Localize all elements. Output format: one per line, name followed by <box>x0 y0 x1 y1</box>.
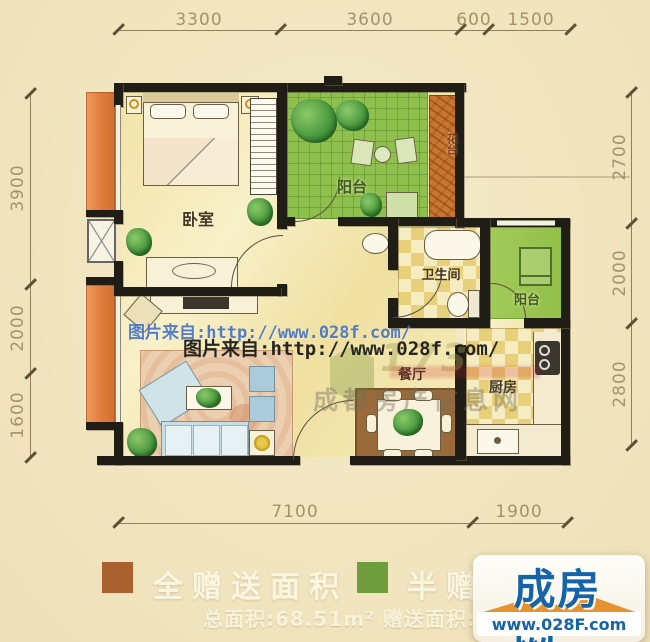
dim-left-2: 2000 <box>8 304 28 351</box>
wall <box>86 210 117 217</box>
dim-left-1: 3900 <box>8 164 28 211</box>
dim-line-left <box>30 93 31 457</box>
label-balcony-top: 阳台 <box>337 176 367 197</box>
sofa-cushion <box>221 425 248 456</box>
label-flower-bed: 花台 <box>443 133 459 155</box>
wardrobe <box>250 98 277 195</box>
legend-swatch-full-gift <box>102 562 133 593</box>
logo-site: www.028F.com <box>492 615 627 634</box>
gift-bay-living <box>86 285 115 423</box>
wall-pier <box>324 76 342 85</box>
dim-right-2: 2000 <box>610 249 630 296</box>
kitchen-sink-drain <box>494 437 501 444</box>
dim-right-1: 2700 <box>610 133 630 180</box>
label-bathroom: 卫生间 <box>421 264 460 283</box>
wall-left <box>114 83 123 107</box>
neighbor-line <box>464 176 630 178</box>
dim-line-bottom <box>118 523 567 524</box>
dim-top-4: 1500 <box>507 10 554 30</box>
balcony-table <box>374 146 391 163</box>
plant-icon <box>336 100 369 131</box>
sink <box>362 233 389 254</box>
dim-top-3: 600 <box>456 10 491 30</box>
wall-bottom <box>97 456 300 465</box>
plant-icon <box>247 198 273 226</box>
toilet-tank <box>468 290 480 318</box>
dim-top-2: 3600 <box>346 10 393 30</box>
floorplan-image: 3300 3600 600 1500 3900 2000 1600 2700 2… <box>0 0 650 642</box>
wall-balcony-kitchen <box>524 318 570 328</box>
wall-right <box>561 218 570 465</box>
flower-bed <box>429 95 456 220</box>
wall <box>86 277 117 285</box>
sofa-cushion <box>165 425 192 456</box>
watermark-url-black: 图片来自:http://www.028f.com/ <box>183 334 499 361</box>
window-balcony-right <box>497 220 555 226</box>
tv <box>183 297 229 309</box>
balcony-chair <box>350 139 374 167</box>
toilet <box>447 292 469 317</box>
wall-left <box>114 210 123 224</box>
window-box <box>87 219 116 263</box>
side-chair <box>249 366 275 392</box>
wall-balcony-bottom <box>287 217 295 226</box>
lamp-icon <box>254 435 270 451</box>
bathtub <box>424 230 481 260</box>
bed-blanket <box>144 138 238 185</box>
plant-icon <box>127 428 157 458</box>
legend-label-full-gift: 全赠送面积 <box>153 562 348 606</box>
wall-bathroom-left <box>388 218 398 270</box>
gift-bay-bedroom <box>86 92 115 212</box>
washing-machine <box>519 247 552 286</box>
bed-headboard <box>143 93 239 103</box>
stove-burner <box>539 359 550 370</box>
balcony-chair <box>394 137 417 165</box>
label-balcony-right: 阳台 <box>514 289 540 308</box>
wall-bathroom-balcony <box>480 218 490 320</box>
plant-icon <box>291 99 337 143</box>
watermark-red-bar <box>390 366 540 378</box>
dim-line-right <box>631 92 632 445</box>
label-bedroom: 卧室 <box>182 206 214 230</box>
dim-line-top <box>118 30 570 31</box>
balcony-planter <box>386 192 418 218</box>
nightstand-lamp <box>129 99 139 109</box>
wall-bedroom-balcony <box>277 83 287 229</box>
dresser-tray <box>172 263 216 279</box>
stove-burner <box>539 345 550 356</box>
wall-top <box>114 83 466 92</box>
plant-icon <box>196 388 221 408</box>
side-chair <box>249 396 275 422</box>
window-left-bedroom <box>115 105 121 212</box>
wall <box>86 422 117 430</box>
pillow <box>193 104 229 119</box>
dim-bottom-1: 7100 <box>271 502 318 522</box>
sofa-cushion <box>193 425 220 456</box>
dim-bottom-2: 1900 <box>495 502 542 522</box>
window-left-living <box>115 290 121 424</box>
wall-bedroom-bottom <box>114 287 281 296</box>
dim-top-1: 3300 <box>175 10 222 30</box>
pillow <box>150 104 186 119</box>
plant-icon <box>126 228 152 256</box>
watermark-brand-text: 成都房产信息网 <box>313 381 523 417</box>
wall-flowerbed-right <box>455 83 464 228</box>
dim-left-3: 1600 <box>8 391 28 438</box>
legend-swatch-half-gift <box>357 562 388 593</box>
dim-right-3: 2800 <box>610 360 630 407</box>
